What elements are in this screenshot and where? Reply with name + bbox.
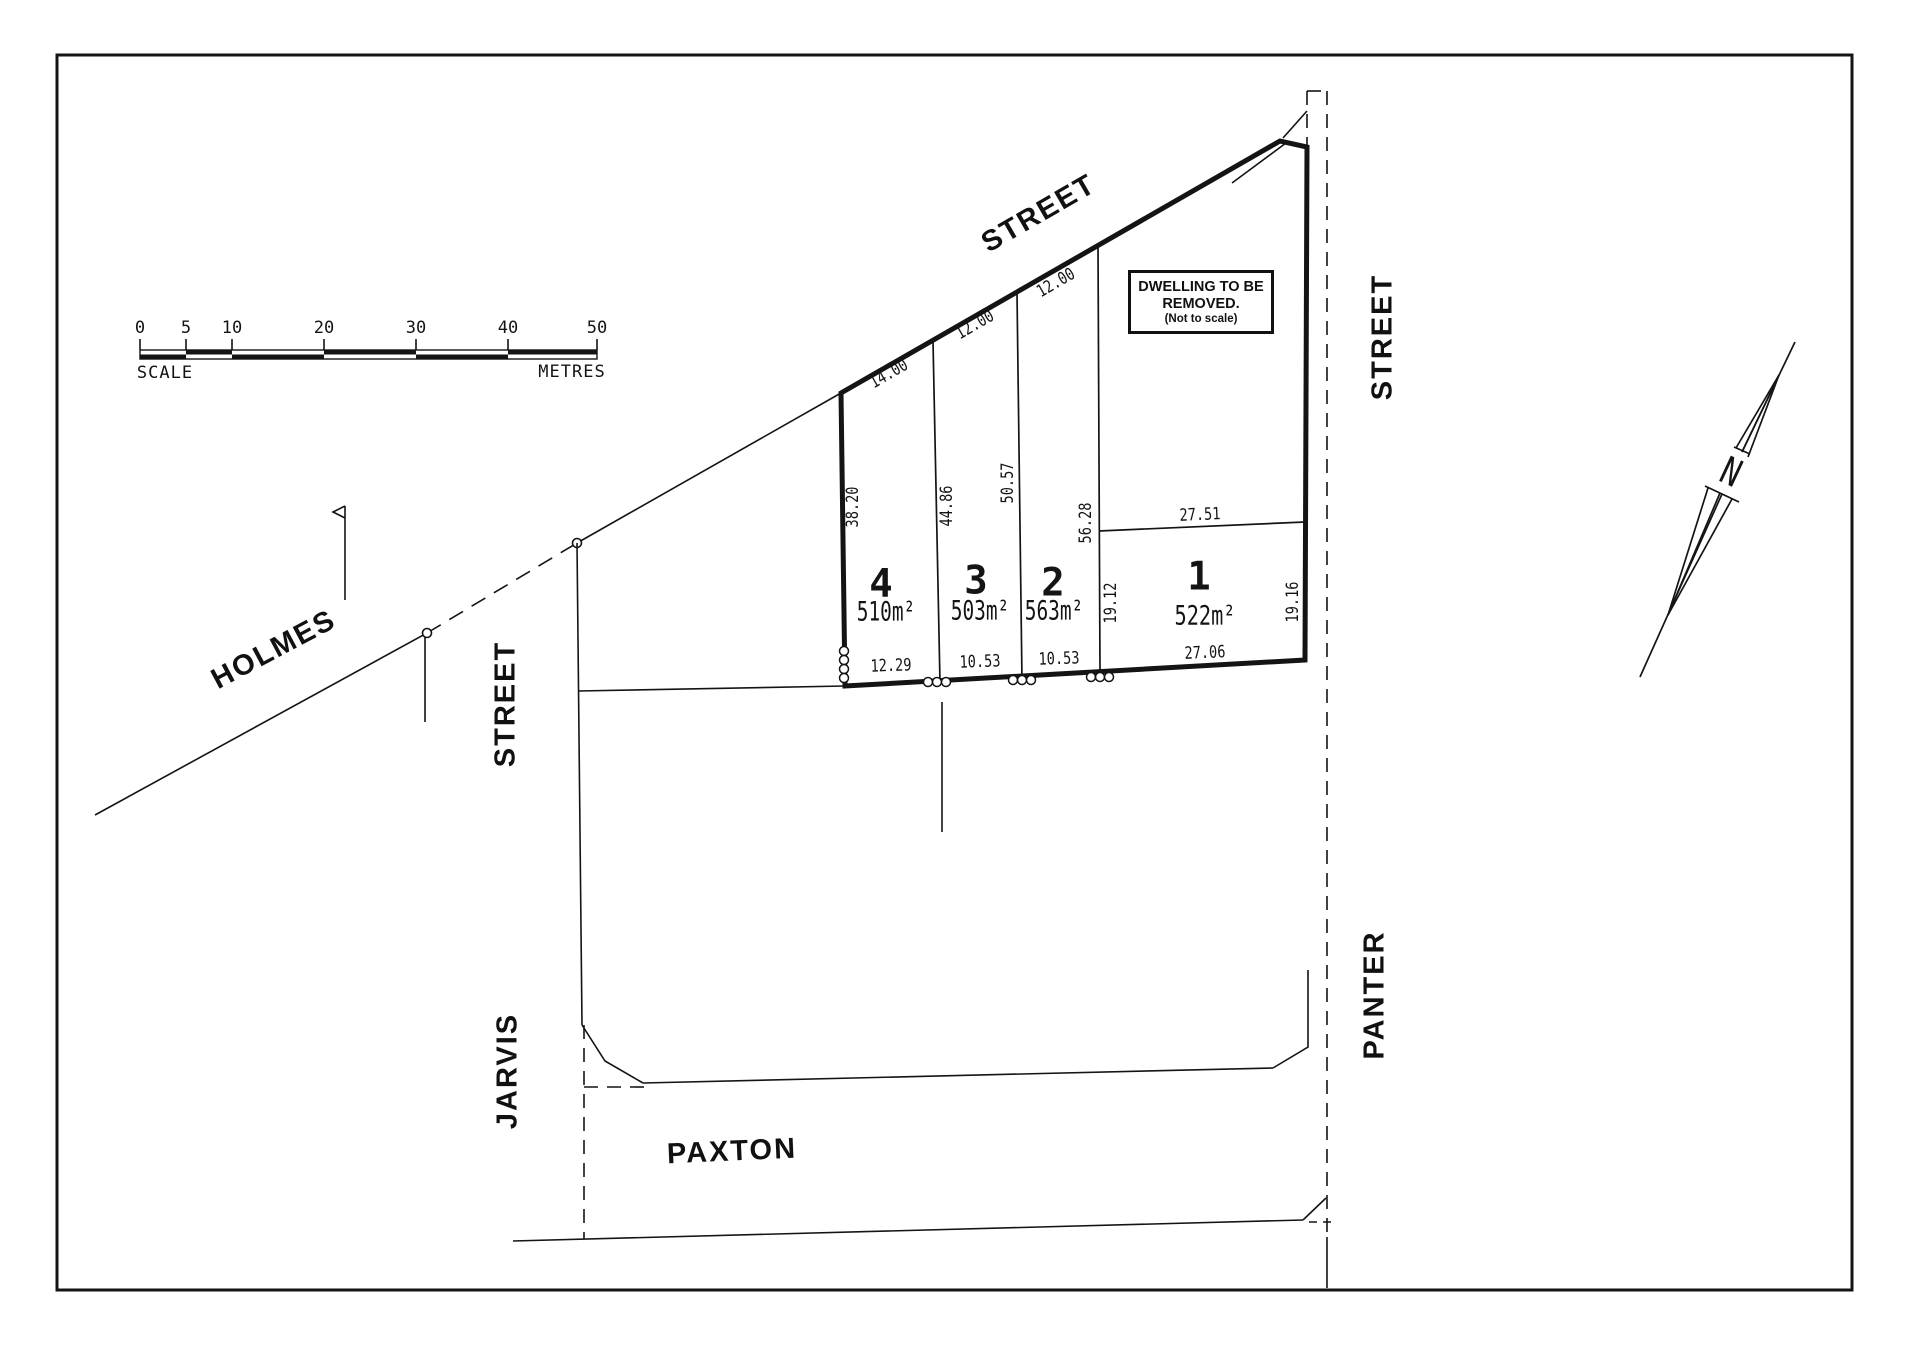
- street-label-jarvis: JARVIS: [492, 1013, 525, 1129]
- dwelling-note-line2: REMOVED.: [1133, 296, 1269, 313]
- street-label-paxton: PAXTON: [666, 1133, 797, 1172]
- north-arrow: [1640, 342, 1795, 677]
- street-label-panter-street: STREET: [1367, 274, 1400, 400]
- scale-tick-label-0: 0: [135, 318, 145, 338]
- scale-tick-label-50: 50: [587, 318, 607, 338]
- dim-lot1-rear: 27.06: [1184, 642, 1226, 664]
- dim-lot4-rear: 12.29: [870, 655, 912, 676]
- dim-lot2-rear: 10.53: [1038, 648, 1080, 669]
- dim-lot3-rear: 10.53: [959, 651, 1001, 672]
- dim-lot1-north: 27.51: [1179, 504, 1221, 526]
- scale-tick-label-5: 5: [181, 318, 191, 338]
- jarvis-street-lines: [577, 543, 648, 1239]
- dim-lot4-lot3: 44.86: [937, 486, 957, 527]
- plan-linework: [0, 0, 1920, 1357]
- dim-lot3-lot2: 50.57: [998, 463, 1018, 504]
- scale-bar-graphic: [140, 339, 597, 359]
- scale-tick-label-10: 10: [222, 318, 242, 338]
- survey-flag-icon: [333, 506, 345, 600]
- border-frame: [57, 55, 1852, 1290]
- dim-lot2-lot1: 56.28: [1076, 503, 1096, 544]
- panter-street-lines: [1307, 91, 1327, 1288]
- scale-tick-label-40: 40: [498, 318, 518, 338]
- scale-tick-label-30: 30: [406, 318, 426, 338]
- dim-lot1-west: 19.12: [1101, 583, 1121, 624]
- lot-4-area: 510m²: [857, 597, 916, 628]
- lot-3-area: 503m²: [951, 596, 1010, 627]
- scale-tick-label-20: 20: [314, 318, 334, 338]
- scale-caption: SCALE: [137, 363, 193, 383]
- rear-boundary-lines: [578, 686, 942, 832]
- dim-lot1-east: 19.16: [1283, 582, 1303, 623]
- dwelling-note-line1: DWELLING TO BE: [1133, 279, 1269, 296]
- subdivision-plan: 0 5 10 20 30 40 50 SCALE METRES HOLMES S…: [0, 0, 1920, 1357]
- holmes-street-boundary: [95, 393, 841, 815]
- metres-caption: METRES: [538, 362, 605, 382]
- paxton-road-lines: [513, 970, 1331, 1241]
- dim-lot4-west: 38.20: [843, 487, 863, 528]
- dwelling-note-box: DWELLING TO BE REMOVED. (Not to scale): [1128, 270, 1274, 334]
- lot-1-area: 522m²: [1175, 601, 1236, 632]
- dwelling-note-line3: (Not to scale): [1133, 313, 1269, 326]
- street-label-jarvis-street: STREET: [490, 641, 523, 767]
- lot-1-number: 1: [1187, 555, 1210, 600]
- lot-2-area: 563m²: [1025, 596, 1084, 627]
- street-label-panter: PANTER: [1359, 930, 1392, 1059]
